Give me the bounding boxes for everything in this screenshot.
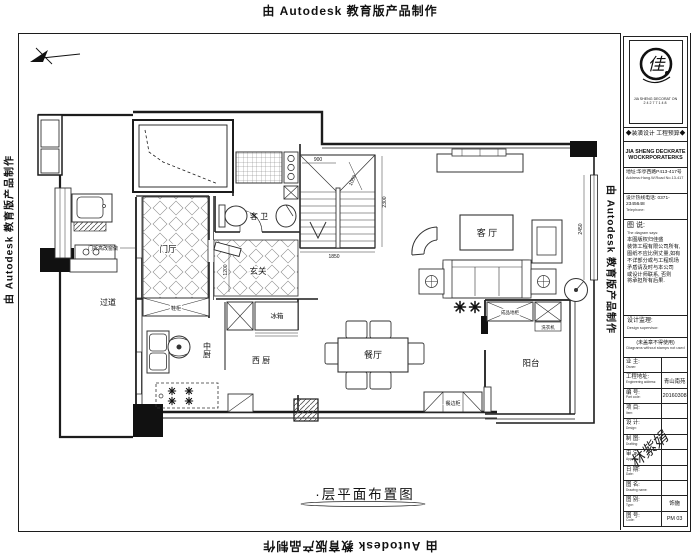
room-label-entry: 玄关 (249, 266, 267, 276)
company-address: 地址:华亭西路P413-417号 Address:Hang.W.Road No.… (624, 168, 687, 194)
dim-stair-width: 900 (314, 157, 323, 163)
disclaimer-line: 装饰工程有限公司所有, (627, 244, 687, 251)
dining-set (325, 321, 491, 412)
design-supervisor: 设计监理: Design supervisor: (624, 316, 687, 338)
diagram-says-en: The diagram says: (627, 231, 687, 236)
floor-plan: 门厅 玄关 客 卫 过道 中厨 西 厨 餐厅 客 厅 阳台 冰箱 鞋柜 餐边柜 … (0, 0, 700, 560)
table-row-item: 项 目:Item: (624, 404, 687, 419)
label-balcony-cabinet: 成品地柜 (501, 309, 519, 316)
supervisor-en: Design supervisor: (627, 326, 687, 331)
table-row-drawing-name: 图 名:Drawing name: (624, 481, 687, 496)
label-washer: 洗衣机 (541, 324, 555, 331)
label-sideboard: 餐边柜 (445, 400, 460, 407)
dim-living-window: 2450 (578, 223, 584, 234)
drawing-title: ·层平面布置图 (285, 483, 445, 503)
living-room-furniture (412, 149, 588, 313)
disclaimer-text: 本图版权归佳盛 装饰工程有限公司所有, 图纸不应比例丈量,如有 不详部分或与工程… (627, 237, 687, 285)
diagram-notes: 图 说: The diagram says: 本图版权归佳盛 装饰工程有限公司所… (624, 220, 687, 316)
dim-stair-total: 1850 (328, 254, 339, 260)
table-row-date: 日 期:Date: (624, 466, 687, 481)
company-logo-section: 佳 JIA SHENG DECORAT ON 24277148 (624, 37, 687, 128)
disclaimer-line: 矛盾请及时与本公司 (627, 265, 687, 272)
supervisor-cn: 设计监理: (627, 318, 687, 326)
room-label-guest-bath: 客 卫 (250, 211, 268, 221)
drawing-sheet: 由 Autodesk 教育版产品制作 由 Autodesk 教育版产品制作 由 … (0, 0, 700, 560)
telephone-en: Telephone: (626, 208, 686, 213)
table-row-code: 编 号:Part code: 20160308 (624, 389, 687, 404)
label-shoe-cabinet: 鞋柜 (171, 305, 181, 312)
note-window: 门拆高改窗做 (88, 245, 118, 252)
stamp-note-en: Diagrams without stamps not used (624, 346, 687, 351)
telephone-cn: 设计热线电话: 0371-2345648 (626, 196, 686, 208)
logo-subcaption: 24277148 (630, 101, 682, 105)
company-name-en-line2: WOCKRPORATERKS (624, 155, 687, 161)
dim-entry-depth: 1200 (223, 264, 229, 275)
room-label-living: 客 厅 (477, 227, 498, 238)
title-block: 佳 JIA SHENG DECORAT ON 24277148 ◆装潢设计 工程… (620, 33, 690, 530)
company-telephone: 设计热线电话: 0371-2345648 Telephone: (624, 194, 687, 220)
room-label-foyer: 门厅 (159, 244, 177, 254)
table-row-owner: 业 主:Owner: (624, 358, 687, 373)
room-label-corridor: 过道 (100, 297, 116, 307)
company-logo-icon: 佳 (635, 45, 677, 91)
table-row-drawing-type: 图 别:Type: 饰施 (624, 496, 687, 511)
room-label-kitchen-west: 西 厨 (252, 356, 270, 365)
table-row-address: 工程地址:Engineering address: 青山南苑 (624, 373, 687, 388)
logo-character: 佳 (647, 55, 666, 74)
company-name-en: JIA SHENG DECKRATE WOCKRPORATERKS (624, 142, 687, 168)
disclaimer-line: 将承担所有后果. (627, 278, 687, 285)
room-label-dining: 餐厅 (364, 349, 382, 360)
dim-stair-depth: 2300 (382, 196, 388, 207)
storage-room (133, 120, 233, 192)
room-label-balcony: 阳台 (522, 358, 539, 368)
disclaimer-line: 不详部分或与工程现场 (627, 258, 687, 265)
room-label-kitchen-cn: 中厨 (203, 341, 212, 358)
diagram-says-cn: 图 说: (627, 222, 687, 231)
table-row-drawing-number: 图 号:Code: PM 03 (624, 512, 687, 526)
stamp-note: (未盖章不得使用) Diagrams without stamps not us… (624, 338, 687, 358)
company-tagline: ◆装潢设计 工程预算◆ (624, 128, 687, 142)
north-arrow-icon (30, 48, 80, 64)
address-en: Address:Hang.W.Road No.13-417 (626, 176, 686, 181)
dim-stair-run: 1050 (348, 174, 358, 187)
label-fridge: 冰箱 (271, 311, 285, 320)
disclaimer-line: 图纸不应比例丈量,如有 (627, 251, 687, 258)
